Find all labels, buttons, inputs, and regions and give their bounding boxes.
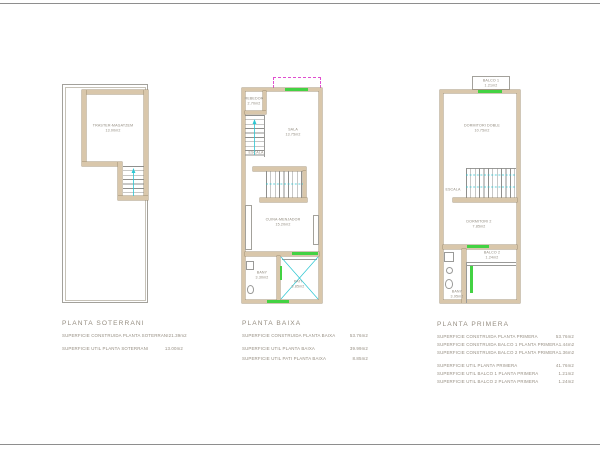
page-border-top [0,3,600,4]
plan-title-baixa: PLANTA BAIXA [242,320,301,327]
plan-annotations [242,77,322,303]
room-name: DORMITORI 2 [466,219,491,223]
floorplan-primera: BALCO 1 1.21m2 DORMITORI DOBLE 10.75m2 E… [440,74,520,303]
room-name: BALCO 1 [483,78,499,82]
area-value: 8.85m2 [352,356,368,361]
floorplan-baixa: REBEDOR 2.70m2 SALA 13.75m2 ESCALA CUINA… [242,77,322,303]
room-label-sala: SALA 13.75m2 [285,127,300,136]
room-label-dormitori2: DORMITORI 2 7.85m2 [466,219,491,228]
plan-title-soterrani: PLANTA SOTERRANI [62,320,145,327]
area-label: SUPERFICIE CONSTRUIDA PLANTA PRIMERA [437,334,538,339]
room-name: TRASTER-MAGATZEM [93,123,133,127]
room-name: BANY [257,270,267,274]
room-name: SALA [288,127,298,131]
room-label-pati: PATI 8.85m2 [292,279,305,288]
area-value: 53.76m2 [556,334,574,339]
area-row: SUPERFICIE UTIL PLANTA SOTERRANI 13.00m2 [62,346,183,351]
room-label-balco2: BALCO 2 1.24m2 [484,250,500,259]
room-label-cuina: CUINA-MENJADOR 15.20m2 [266,217,301,226]
room-name: CUINA-MENJADOR [266,217,301,221]
area-label: SUPERFICIE UTIL PLANTA SOTERRANI [62,346,148,351]
room-name: BALCO 2 [484,250,500,254]
room-area: 7.85m2 [473,224,486,228]
room-label-dormitori-doble: DORMITORI DOBLE 10.75m2 [464,123,500,132]
area-row: SUPERFICIE CONSTRUIDA PLANTA BAIXA 53.76… [242,333,368,338]
room-area: 13.00m2 [105,128,120,132]
area-row: SUPERFICIE CONSTRUIDA PLANTA PRIMERA 53.… [437,334,574,339]
area-value: 41.76m2 [556,363,574,368]
room-area: 2.70m2 [248,101,261,105]
room-area: 13.75m2 [285,132,300,136]
floorplan-soterrani: TRASTER-MAGATZEM 13.00m2 [62,84,148,303]
room-name: ESCALA [248,151,263,155]
room-label-bany: BANY 3.95m2 [451,289,464,298]
room-label-escala: ESCALA [445,188,460,193]
room-label-traster: TRASTER-MAGATZEM 13.00m2 [93,123,133,132]
room-label-bany: BANY 3.30m2 [256,270,269,279]
area-value: 53.76m2 [350,333,368,338]
area-row: SUPERFICIE CONSTRUIDA BALCO 1 PLANTA PRI… [437,342,574,347]
room-area: 15.20m2 [275,222,290,226]
area-label: SUPERFICIE CONSTRUIDA PLANTA SOTERRANI [62,333,169,338]
room-area: 10.75m2 [474,128,489,132]
area-value: 1.21m2 [558,371,574,376]
area-row: SUPERFICIE UTIL BALCO 1 PLANTA PRIMERA 1… [437,371,574,376]
room-name: BANY [452,289,462,293]
area-value: 21.39m2 [169,333,187,338]
area-label: SUPERFICIE UTIL BALCO 1 PLANTA PRIMERA [437,371,538,376]
area-label: SUPERFICIE UTIL BALCO 2 PLANTA PRIMERA [437,379,538,384]
area-row: SUPERFICIE UTIL PLANTA BAIXA 39.99m2 [242,346,368,351]
area-label: SUPERFICIE CONSTRUIDA PLANTA BAIXA [242,333,335,338]
area-row: SUPERFICIE UTIL PLANTA PRIMERA 41.76m2 [437,363,574,368]
area-label: SUPERFICIE UTIL PLANTA BAIXA [242,346,315,351]
page-border-bottom [0,444,600,445]
area-row: SUPERFICIE CONSTRUIDA BALCO 2 PLANTA PRI… [437,350,574,355]
area-value: 1.36m2 [559,350,575,355]
room-name: ESCALA [445,188,460,192]
room-label-balco1: BALCO 1 1.21m2 [483,78,499,87]
room-label-escala: ESCALA [248,151,263,156]
area-value: 1.24m2 [558,379,574,384]
room-name: DORMITORI DOBLE [464,123,500,127]
area-value: 39.99m2 [350,346,368,351]
area-value: 1.44m2 [559,342,575,347]
room-area: 1.24m2 [486,255,499,259]
drawing-sheet: TRASTER-MAGATZEM 13.00m2 [0,0,600,450]
area-row: SUPERFICIE CONSTRUIDA PLANTA SOTERRANI 2… [62,333,183,338]
area-label: SUPERFICIE UTIL PATI PLANTA BAIXA [242,356,326,361]
stair-direction-arrow [62,84,148,303]
room-area: 3.30m2 [256,275,269,279]
area-label: SUPERFICIE CONSTRUIDA BALCO 2 PLANTA PRI… [437,350,559,355]
area-row: SUPERFICIE UTIL BALCO 2 PLANTA PRIMERA 1… [437,379,574,384]
area-label: SUPERFICIE UTIL PLANTA PRIMERA [437,363,517,368]
area-value: 13.00m2 [165,346,183,351]
room-area: 8.85m2 [292,284,305,288]
room-name: PATI [294,279,302,283]
room-area: 3.95m2 [451,294,464,298]
room-label-rebedor: REBEDOR 2.70m2 [245,96,264,105]
area-label: SUPERFICIE CONSTRUIDA BALCO 1 PLANTA PRI… [437,342,559,347]
room-area: 1.21m2 [485,83,498,87]
area-row: SUPERFICIE UTIL PATI PLANTA BAIXA 8.85m2 [242,356,368,361]
room-name: REBEDOR [245,96,264,100]
plan-title-primera: PLANTA PRIMERA [437,321,509,328]
